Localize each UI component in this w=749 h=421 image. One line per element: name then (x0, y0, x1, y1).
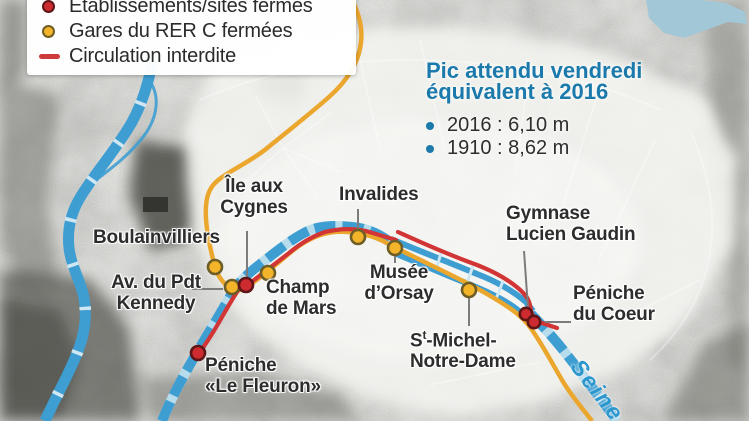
label-ile-aux-cygnes: Île aux Cygnes (220, 176, 287, 218)
flood-level-1910: 1910 : 8,62 m (426, 137, 642, 160)
station-dot-musee-orsay (388, 241, 402, 255)
label-champ-de-mars: Champ de Mars (266, 277, 336, 319)
bullet-icon (426, 145, 434, 153)
label-invalides: Invalides (339, 184, 419, 205)
label-boulainvilliers: Boulainvilliers (93, 227, 220, 248)
site-dot-ile-aux-cygnes (239, 278, 253, 292)
label-peniche-du-coeur: Péniche du Coeur (573, 283, 655, 325)
site-dot-peniche-du-coeur (528, 316, 540, 328)
dark-building-block (143, 197, 168, 212)
flood-peak-infobox: Pic attendu vendredi équivalent à 2016 2… (426, 60, 642, 160)
legend-label: Circulation interdite (69, 45, 236, 68)
closed-station-dot-icon (42, 25, 55, 38)
label-gymnase-lucien-gaudin: Gymnase Lucien Gaudin (506, 203, 635, 245)
closed-site-dot-icon (42, 0, 55, 13)
legend-item-closed-sites: Établissements/sites fermés (39, 0, 348, 19)
label-peniche-le-fleuron: Péniche «Le Fleuron» (205, 355, 321, 397)
infobox-title-line1: Pic attendu vendredi (426, 60, 642, 81)
infobox-title-line2: équivalent à 2016 (426, 81, 642, 102)
label-musee-orsay: Musée d’Orsay (364, 262, 433, 304)
legend-item-closed-stations: Gares du RER C fermées (39, 19, 348, 44)
station-dot-av-pdt-kennedy (225, 280, 239, 294)
label-st-michel-notre-dame: St-Michel- Notre-Dame (410, 325, 516, 372)
label-av-pdt-kennedy: Av. du Pdt Kennedy (111, 272, 201, 314)
legend-label: Gares du RER C fermées (69, 20, 292, 43)
site-dot-peniche-le-fleuron (191, 346, 205, 360)
flood-map-infographic: Établissements/sites fermés Gares du RER… (0, 0, 749, 421)
legend-item-closed-roads: Circulation interdite (39, 44, 348, 69)
station-dot-boulainvilliers (208, 260, 222, 274)
closed-road-line-icon (39, 54, 60, 59)
legend-box: Établissements/sites fermés Gares du RER… (27, 0, 356, 75)
infobox-title: Pic attendu vendredi équivalent à 2016 (426, 60, 642, 102)
station-dot-st-michel (462, 283, 476, 297)
bullet-icon (426, 122, 434, 130)
legend-label: Établissements/sites fermés (69, 0, 313, 18)
flood-level-2016: 2016 : 6,10 m (426, 114, 642, 137)
station-dot-invalides (351, 230, 365, 244)
